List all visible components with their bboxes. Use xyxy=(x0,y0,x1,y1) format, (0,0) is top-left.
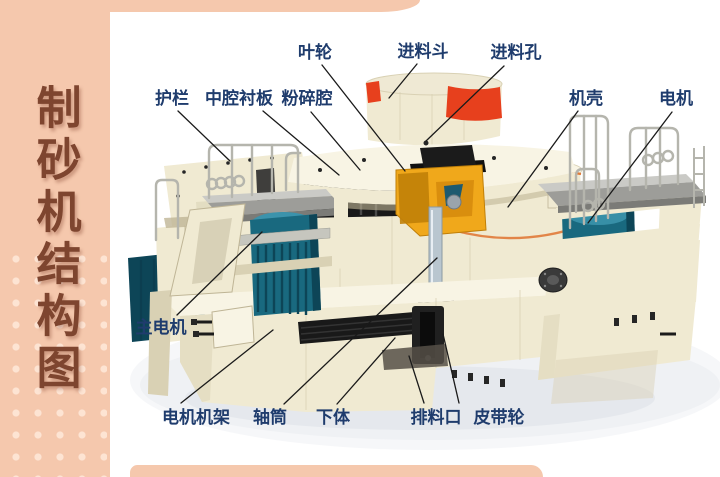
machine-illustration xyxy=(128,73,706,412)
part-label-discharge-port: 排料口 xyxy=(411,407,462,427)
part-label-motor-frame: 电机机架 xyxy=(162,407,230,427)
part-label-middle-cavity-liner: 中腔衬板 xyxy=(205,88,274,108)
part-label-crushing-chamber: 粉碎腔 xyxy=(282,88,333,108)
hopper-red-band xyxy=(446,86,502,121)
part-label-motor: 电机 xyxy=(659,88,693,108)
part-label-shaft-tube: 轴筒 xyxy=(253,407,287,427)
part-label-main-motor: 主电机 xyxy=(136,317,187,337)
page: 制砂机结构图 xyxy=(0,0,720,477)
part-label-belt-pulley: 皮带轮 xyxy=(474,407,525,427)
machine-diagram: 叶轮进料斗进料孔护栏中腔衬板粉碎腔机壳电机主电机电机机架轴筒下体排料口皮带轮 xyxy=(0,0,720,477)
part-label-feed-hopper: 进料斗 xyxy=(398,41,449,61)
part-label-lower-body: 下体 xyxy=(316,407,351,427)
part-label-feed-hole: 进料孔 xyxy=(491,42,542,62)
part-label-guardrail: 护栏 xyxy=(155,88,189,108)
part-label-casing: 机壳 xyxy=(569,88,603,108)
feed-hopper-part xyxy=(366,73,502,146)
front-pillar xyxy=(334,194,348,269)
part-label-impeller: 叶轮 xyxy=(298,42,332,62)
bearing-flange xyxy=(539,268,567,292)
leader-line-guardrail xyxy=(178,111,230,161)
